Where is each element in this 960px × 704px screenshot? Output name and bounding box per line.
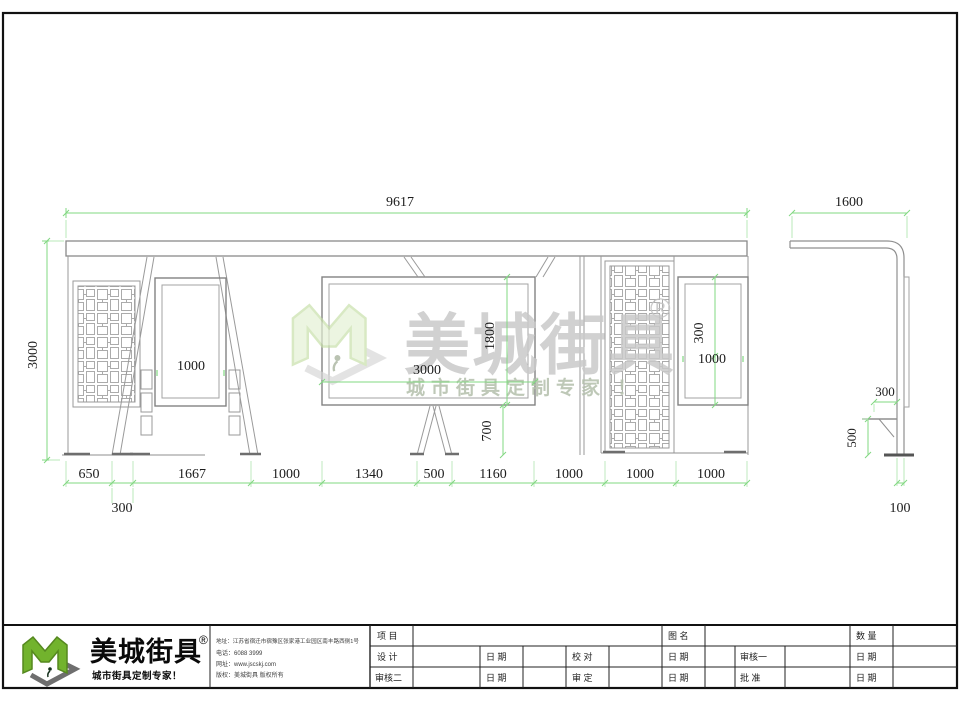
dim-bottom-7: 1000 bbox=[555, 467, 583, 482]
field-drawing-name: 图 名 bbox=[668, 630, 689, 641]
contact-phone: 电话：6088 3999 bbox=[216, 649, 263, 657]
dim-bottom-offset: 300 bbox=[112, 501, 133, 516]
right-sign-board bbox=[678, 277, 748, 405]
contact-web: 网址：www.jscskj.com bbox=[216, 660, 276, 668]
field-reviewer2: 审核二 bbox=[375, 672, 402, 683]
contact-copyright: 版权：美城街具 版权所有 bbox=[216, 671, 284, 679]
watermark-brand: 美城街具 bbox=[404, 308, 676, 382]
watermark-logo-icon bbox=[293, 305, 379, 381]
company-brand: 美城街具 bbox=[90, 636, 202, 667]
side-view: 1600 300 500 100 bbox=[789, 195, 914, 516]
field-proofread: 校 对 bbox=[572, 651, 593, 662]
company-logo-icon bbox=[23, 637, 75, 684]
dim-board-width: 3000 bbox=[413, 363, 441, 378]
field-date-5: 日 期 bbox=[668, 673, 689, 683]
field-date-3: 日 期 bbox=[856, 652, 877, 662]
roof-band bbox=[66, 241, 747, 256]
dim-overall-height: 3000 bbox=[26, 341, 41, 369]
watermark-tagline: 城市街具定制专家 ！ bbox=[406, 376, 642, 399]
dim-bottom-5: 500 bbox=[424, 467, 445, 482]
a-frame-slats bbox=[141, 370, 240, 435]
lattice-panel-left bbox=[73, 281, 140, 407]
dim-bottom-3: 1000 bbox=[272, 467, 300, 482]
field-date-6: 日 期 bbox=[856, 673, 877, 683]
dim-right-sign-height: 300 bbox=[692, 323, 707, 344]
dim-bottom-4: 1340 bbox=[355, 467, 383, 482]
dim-board-ground-gap: 700 bbox=[480, 421, 495, 442]
field-design: 设 计 bbox=[377, 651, 398, 662]
dim-board-height: 1800 bbox=[483, 322, 498, 350]
bottom-dim-line bbox=[63, 480, 750, 503]
field-approve: 审 定 bbox=[572, 672, 593, 683]
dim-post-width: 100 bbox=[890, 501, 911, 516]
field-project: 项 目 bbox=[377, 631, 398, 641]
drawing-sheet: 美城街具 ® 城市街具定制专家 ！ 9617 3000 1000 bbox=[0, 0, 960, 704]
dim-bottom-2: 1667 bbox=[178, 467, 206, 482]
dim-total-width: 9617 bbox=[386, 195, 414, 210]
field-ratify: 批 准 bbox=[740, 672, 761, 683]
field-date-1: 日 期 bbox=[486, 652, 507, 662]
dim-left-sign-width: 1000 bbox=[177, 359, 205, 374]
ground-lines bbox=[62, 453, 748, 455]
dim-side-width: 1600 bbox=[835, 195, 863, 210]
field-date-2: 日 期 bbox=[668, 652, 689, 662]
company-tagline: 城市街具定制专家！ bbox=[92, 670, 182, 682]
field-date-4: 日 期 bbox=[486, 673, 507, 683]
company-registered-icon: ® bbox=[199, 633, 208, 647]
dim-bottom-6: 1160 bbox=[479, 467, 506, 482]
contact-address: 地址：江苏省宿迁市宿豫区张家港工业园区南丰路西侧1号 bbox=[216, 637, 359, 645]
dim-bottom-8: 1000 bbox=[626, 467, 654, 482]
field-reviewer1: 审核一 bbox=[740, 651, 767, 662]
dim-bottom-9: 1000 bbox=[697, 467, 725, 482]
dim-bottom-1: 650 bbox=[79, 467, 100, 482]
dim-right-sign-width: 1000 bbox=[698, 352, 726, 367]
watermark-registered-icon: ® bbox=[650, 293, 671, 324]
dim-seat-depth: 300 bbox=[875, 384, 895, 399]
side-structure bbox=[790, 241, 914, 455]
dim-seat-height: 500 bbox=[844, 428, 859, 448]
left-sign-board bbox=[155, 278, 226, 406]
field-quantity: 数 量 bbox=[856, 630, 877, 641]
